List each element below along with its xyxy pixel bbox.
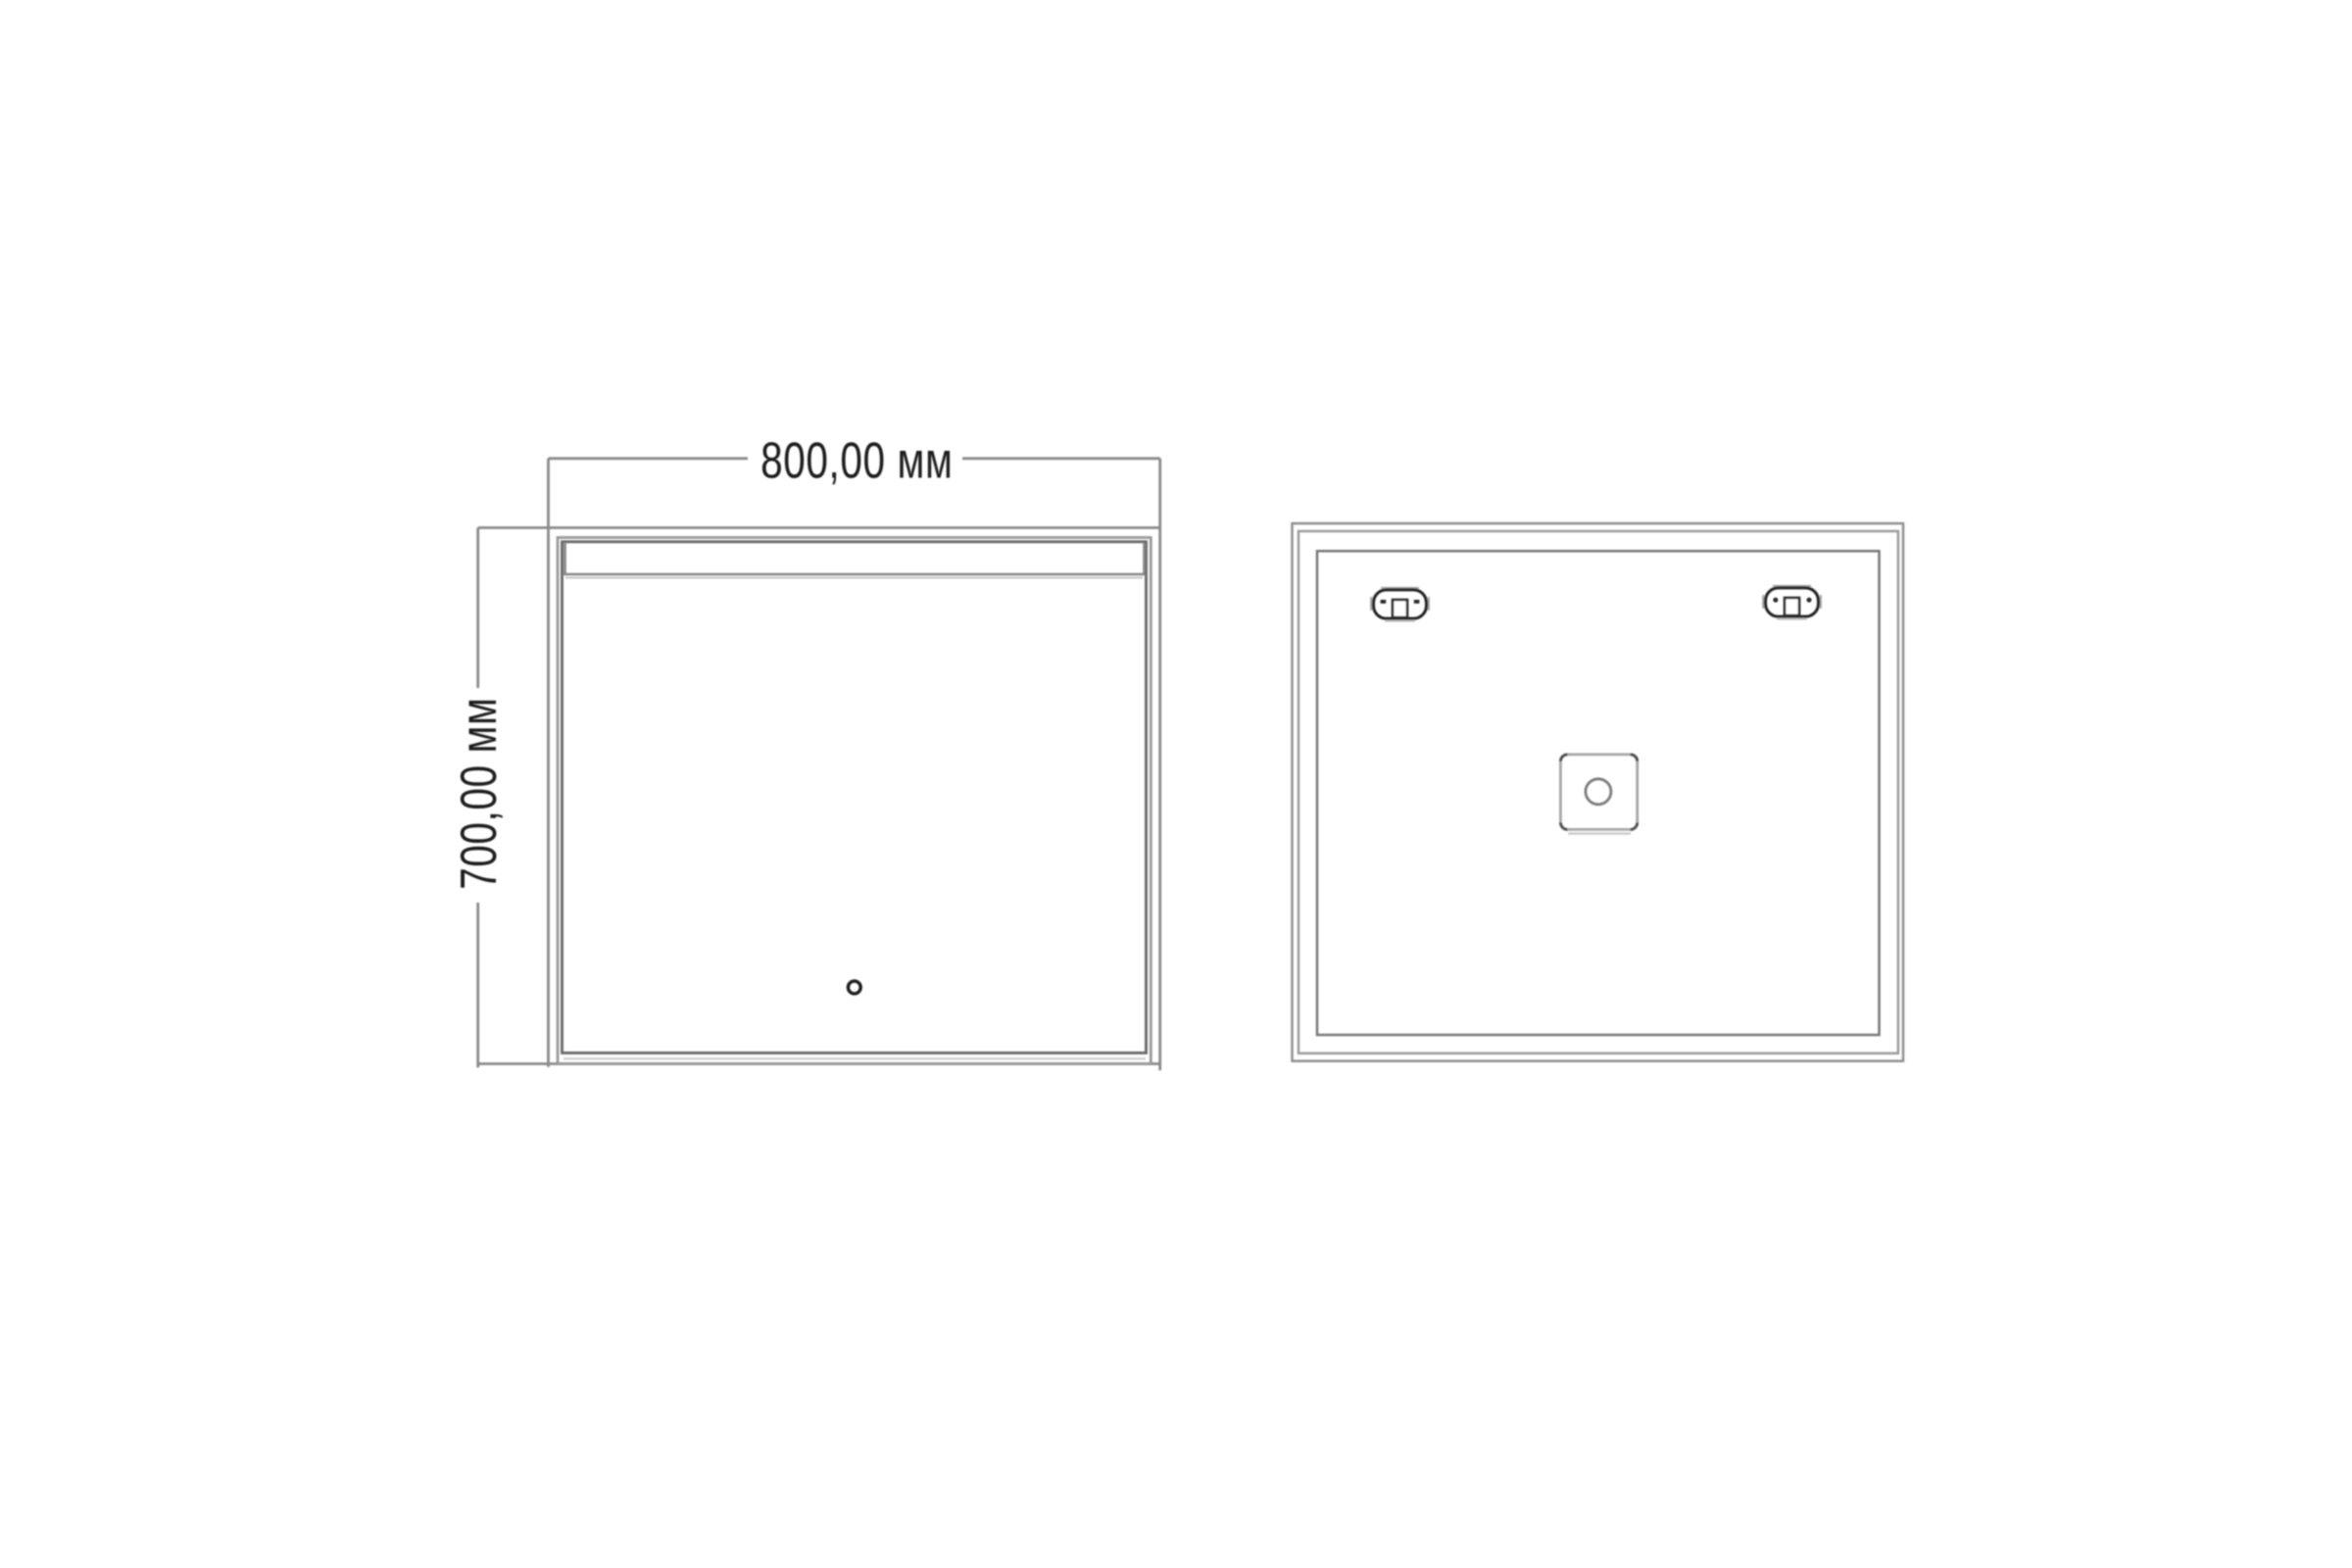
svg-text:700,00 мм: 700,00 мм: [450, 698, 507, 890]
svg-text:800,00 мм: 800,00 мм: [760, 432, 953, 489]
